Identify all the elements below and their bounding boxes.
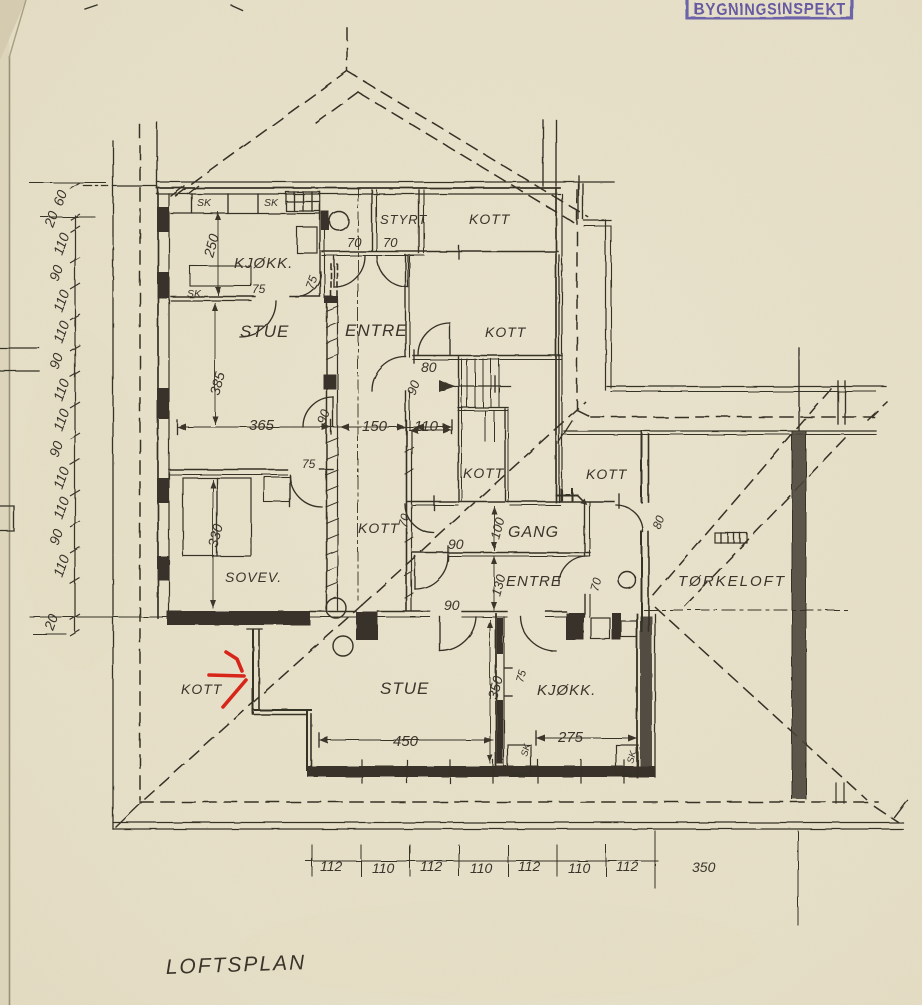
svg-text:450: 450	[393, 733, 419, 750]
svg-text:LOFTSPLAN: LOFTSPLAN	[165, 951, 306, 979]
svg-text:350: 350	[692, 859, 716, 875]
svg-text:KJØKK.: KJØKK.	[234, 255, 293, 272]
svg-text:110: 110	[568, 860, 591, 876]
svg-text:SK: SK	[197, 197, 212, 209]
svg-text:70: 70	[383, 235, 398, 250]
svg-text:112: 112	[616, 858, 639, 874]
svg-text:GANG: GANG	[508, 524, 559, 541]
svg-text:112: 112	[420, 858, 443, 874]
svg-text:ENTRE: ENTRE	[345, 321, 408, 340]
svg-text:KOTT: KOTT	[485, 324, 527, 340]
svg-text:KOTT: KOTT	[358, 520, 400, 536]
svg-text:75: 75	[302, 457, 316, 471]
svg-text:112: 112	[518, 858, 541, 874]
svg-text:ENTRE: ENTRE	[506, 573, 562, 590]
svg-text:110: 110	[470, 860, 493, 876]
svg-text:90: 90	[448, 536, 464, 552]
svg-text:275: 275	[557, 729, 584, 746]
svg-text:KOTT: KOTT	[586, 466, 628, 482]
svg-text:110: 110	[414, 418, 439, 435]
svg-text:80: 80	[421, 359, 437, 375]
svg-text:150: 150	[362, 418, 388, 435]
svg-text:SK.: SK.	[187, 288, 204, 300]
svg-text:KOTT: KOTT	[463, 465, 505, 481]
svg-text:STYRT: STYRT	[380, 212, 427, 227]
svg-text:STUE: STUE	[380, 679, 429, 698]
svg-text:SOVEV.: SOVEV.	[225, 569, 282, 585]
svg-text:KJØKK.: KJØKK.	[537, 682, 596, 699]
svg-text:90: 90	[444, 597, 460, 613]
svg-text:BYGNINGSINSPEKT: BYGNINGSINSPEKT	[694, 0, 846, 19]
svg-text:KOTT: KOTT	[469, 211, 511, 227]
svg-text:110: 110	[372, 860, 395, 876]
svg-text:SK: SK	[264, 197, 279, 209]
svg-text:70: 70	[347, 235, 362, 250]
svg-text:75: 75	[252, 282, 266, 296]
svg-text:STUE: STUE	[240, 322, 289, 341]
svg-text:TØRKELOFT: TØRKELOFT	[678, 573, 786, 590]
svg-text:KOTT: KOTT	[181, 681, 223, 697]
svg-text:112: 112	[320, 858, 343, 874]
svg-text:365: 365	[249, 417, 275, 434]
